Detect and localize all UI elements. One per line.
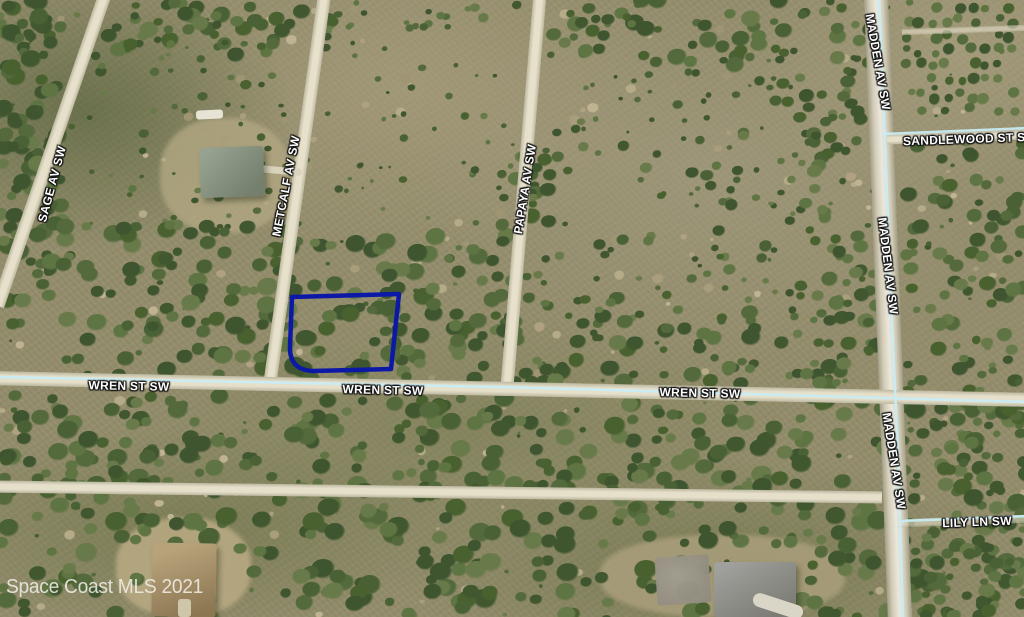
- parcel-outline: [290, 294, 399, 371]
- aerial-map: SAGE AV SW METCALF AV SW PAPAYA AV SW MA…: [0, 0, 1024, 617]
- road-label-wren-st-sw-left: WREN ST SW: [88, 378, 169, 393]
- road-label-wren-st-sw-center: WREN ST SW: [342, 382, 423, 398]
- road-label-wren-st-sw-right: WREN ST SW: [659, 385, 740, 401]
- road-overlay-lines: [0, 0, 1024, 617]
- road-label-lily-ln-sw: LILY LN SW: [942, 514, 1012, 530]
- mls-watermark: Space Coast MLS 2021: [6, 576, 203, 599]
- map-overlay: [0, 0, 1024, 617]
